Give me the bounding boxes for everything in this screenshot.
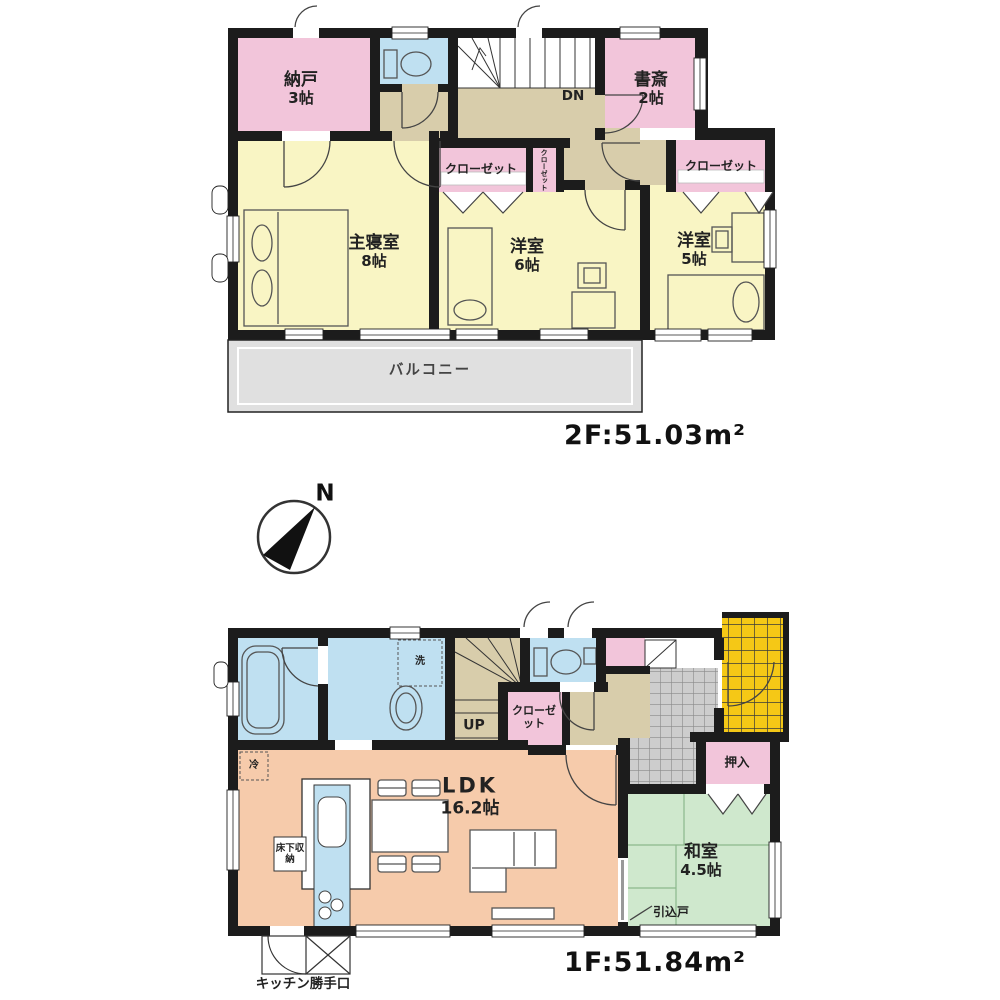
room-size: 3帖 <box>284 90 318 108</box>
closet-label-center: クローゼット <box>445 162 517 176</box>
compass-icon <box>258 501 330 573</box>
entrance-porch-tile <box>722 612 789 738</box>
room-label-ldk: LDK 16.2帖 <box>441 774 500 819</box>
genkan-tile-upper <box>650 668 718 738</box>
room-name: 主寝室 <box>349 233 400 253</box>
room-size: 16.2帖 <box>441 798 500 818</box>
room-name: 書斎 <box>634 70 668 90</box>
balcony-label: バルコニー <box>389 362 471 379</box>
stairs-up-label: UP <box>463 718 485 735</box>
closet-label-right: クローゼット <box>685 159 757 173</box>
floor2-area-label: 2F:51.03m² <box>564 420 746 452</box>
room-label-washitsu: 和室 4.5帖 <box>680 842 722 880</box>
room-name: 和室 <box>684 842 718 862</box>
room-size: 6帖 <box>510 257 544 275</box>
oshiire-label: 押入 <box>724 756 749 771</box>
room-size: 5帖 <box>677 251 711 269</box>
laundry-label: 洗 <box>415 656 425 668</box>
room-name: 納戸 <box>284 70 318 90</box>
closet-label-small: クローゼット <box>540 149 548 191</box>
floor-storage-label: 床下収納 <box>274 843 306 865</box>
room-label-shosai: 書斎 2帖 <box>634 70 668 108</box>
room-label-western5: 洋室 5帖 <box>677 231 711 269</box>
stairs-down-label: DN <box>562 89 585 105</box>
room-label-western6: 洋室 6帖 <box>510 237 544 275</box>
room-name: 洋室 <box>677 231 711 251</box>
floorplan-page: 納戸 3帖 書斎 2帖 主寝室 8帖 洋室 6帖 洋室 5帖 クローゼット クロ… <box>0 0 1000 1000</box>
pocket-door-line <box>621 860 624 920</box>
fridge-label: 冷 <box>249 760 259 772</box>
kitchen-back-door-label: キッチン勝手口 <box>256 977 351 993</box>
2f-stairwell <box>458 38 595 88</box>
room-name: 洋室 <box>510 237 544 257</box>
room-label-master: 主寝室 8帖 <box>349 233 400 271</box>
2f-toilet-room <box>380 38 448 84</box>
room-size: 2帖 <box>634 90 668 108</box>
closet-label-1f: クローゼット <box>511 705 557 731</box>
shoe-cabinet <box>645 640 676 668</box>
room-label-nando: 納戸 3帖 <box>284 70 318 108</box>
sliding-door-label: 引込戸 <box>653 905 689 919</box>
room-name: LDK <box>442 774 498 798</box>
floorplan-drawing <box>0 0 1000 1000</box>
room-size: 4.5帖 <box>680 862 722 880</box>
compass-north-label: N <box>315 480 334 507</box>
genkan-tile-lower <box>630 738 696 784</box>
room-size: 8帖 <box>349 253 400 271</box>
kitchen-back-porch <box>262 936 350 974</box>
floor1-area-label: 1F:51.84m² <box>564 947 746 979</box>
